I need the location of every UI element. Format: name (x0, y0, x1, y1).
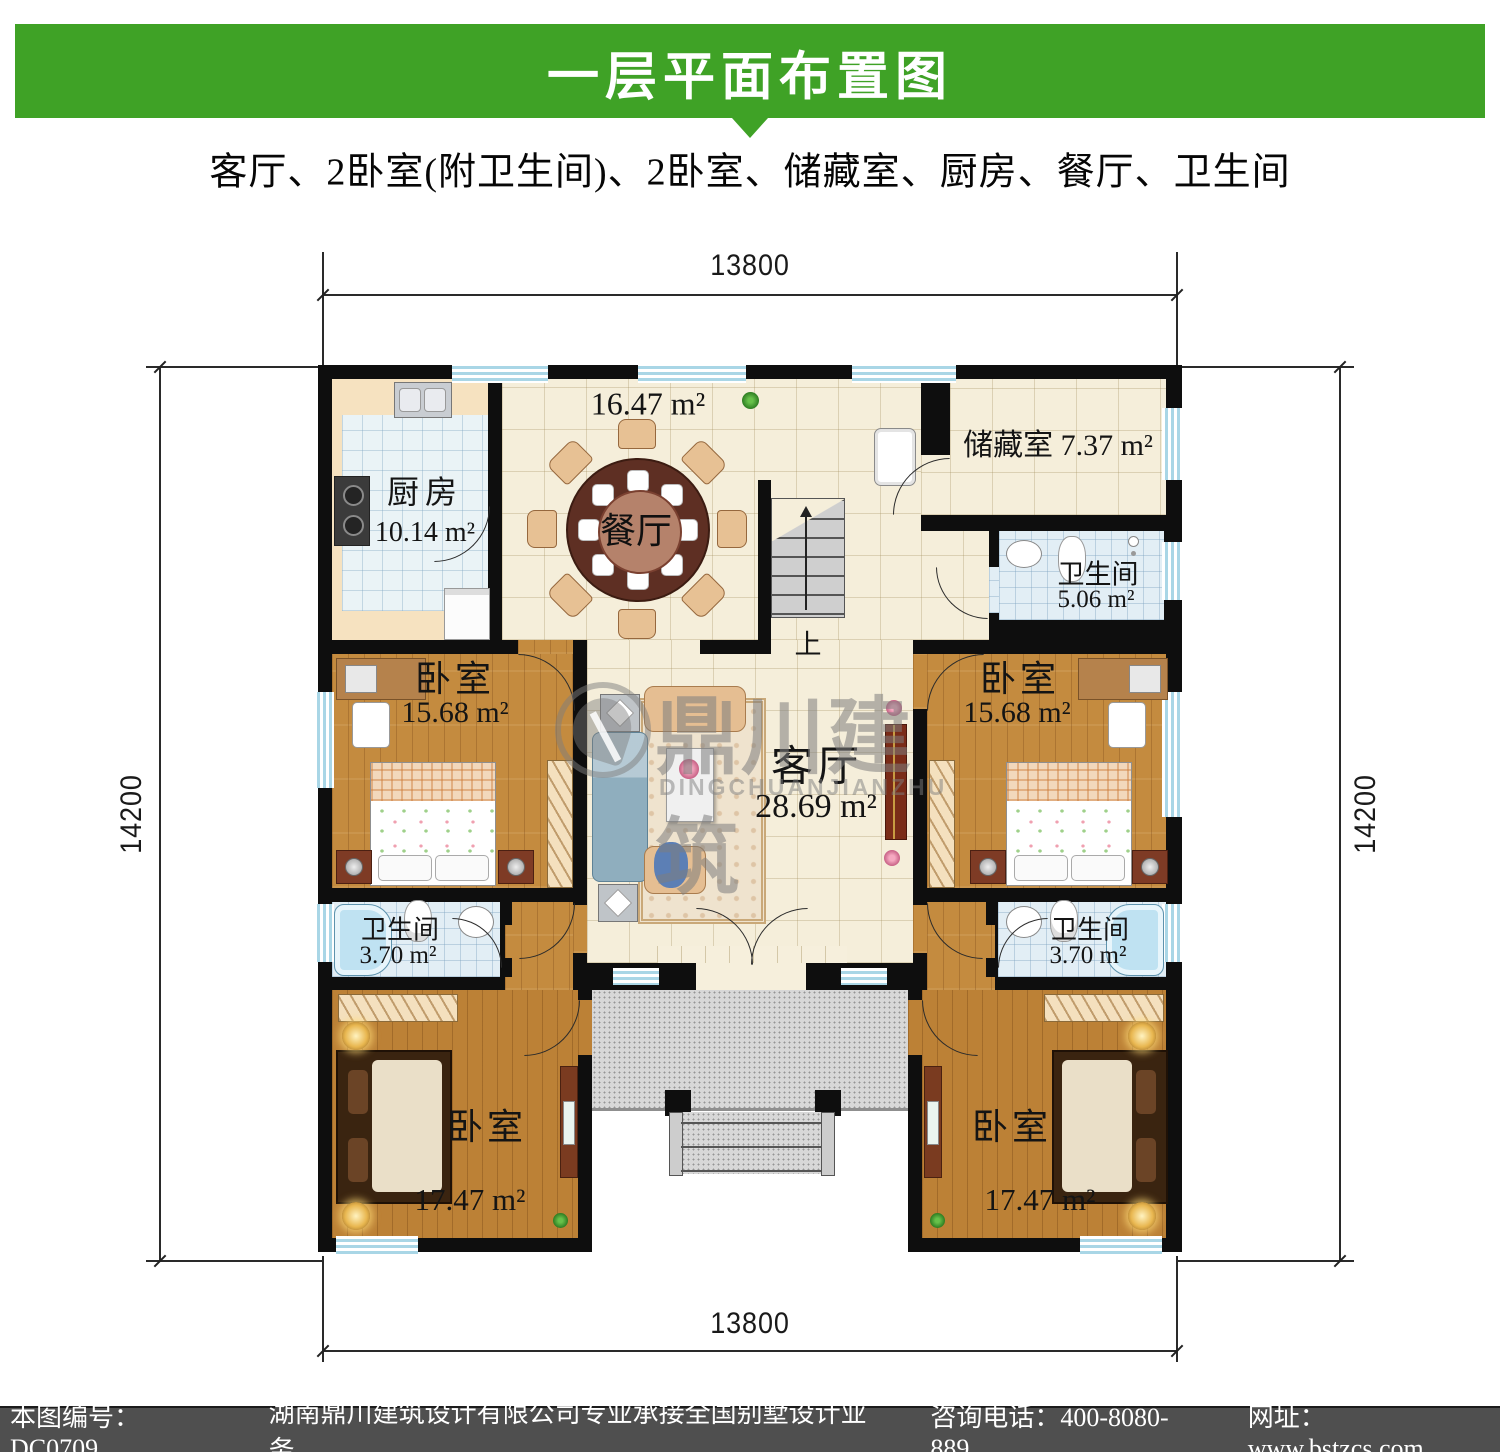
printer (1129, 665, 1161, 693)
room-area-kitchen: 10.14 m² (375, 517, 475, 549)
room-name-bedroom-bottom-left: 卧室 (447, 1098, 527, 1150)
window (314, 904, 334, 962)
window (336, 1236, 418, 1254)
pillow-brown (1136, 1070, 1156, 1114)
room-name-kitchen: 厨房 (387, 467, 463, 513)
door-gap (573, 905, 587, 953)
desk (336, 658, 426, 700)
double-bed (1006, 762, 1132, 886)
stove (334, 476, 370, 546)
stair-arrow-line (805, 514, 807, 610)
room-area-living: 28.69 m² (755, 788, 877, 826)
fridge (444, 588, 490, 640)
entry-opening (696, 963, 806, 990)
burner (343, 485, 364, 506)
tv (927, 1101, 939, 1145)
room-area-dining: 16.47 m² (591, 386, 705, 423)
wall-segment (921, 379, 950, 455)
room-area-bath-top: 5.06 m² (1058, 586, 1135, 614)
sink-bowl (424, 388, 446, 412)
extension-line (146, 366, 322, 368)
window (852, 363, 956, 383)
plant (930, 1213, 945, 1228)
dining-chair (618, 419, 656, 449)
wall-segment (925, 888, 1166, 902)
printer (345, 665, 377, 693)
stair-wall (758, 480, 771, 654)
wall-segment (488, 560, 502, 640)
bedside-lamp (342, 1022, 370, 1050)
dim-line-top (323, 294, 1177, 296)
bed-plaid-blanket (1007, 763, 1131, 801)
wall-segment (921, 515, 1166, 531)
wall-segment (488, 379, 502, 450)
wall-segment (986, 958, 998, 977)
door-gap (989, 567, 999, 613)
window (638, 363, 746, 383)
window (841, 968, 887, 985)
extension-line (322, 1256, 324, 1362)
person-figure (654, 842, 688, 888)
extension-line (1176, 252, 1178, 366)
extension-line (1178, 366, 1354, 368)
room-name-bath-right: 卫生间 (1051, 910, 1129, 947)
dim-label-bottom: 13800 (710, 1307, 790, 1341)
room-name-bedroom-mid-left: 卧室 (415, 650, 495, 702)
side-table (600, 694, 640, 732)
bed-floral-duvet (371, 801, 495, 853)
dim-label-right: 14200 (1349, 774, 1383, 854)
bedside-lamp (342, 1202, 370, 1230)
extension-line (146, 1260, 322, 1262)
wall-segment (573, 640, 587, 888)
wardrobe (338, 994, 458, 1022)
desk-chair (1108, 702, 1146, 748)
footer-website: 网址：www.bstzcs.com (1248, 1397, 1500, 1452)
tv-cabinet (924, 1066, 942, 1178)
pillow (1014, 855, 1068, 881)
room-area-bath-left: 3.70 m² (360, 942, 437, 970)
door-gap (913, 654, 927, 709)
bed-duvet (1062, 1060, 1132, 1192)
door-gap (518, 640, 573, 654)
plant (553, 1213, 568, 1228)
room-name-living: 客厅 (771, 733, 863, 794)
wardrobe (929, 760, 955, 888)
footer-drawing-no: 本图编号：DC0709 (10, 1397, 227, 1452)
dim-line-left (159, 367, 161, 1262)
door-gap (578, 1000, 592, 1055)
nightstand (498, 850, 534, 884)
window (1080, 1236, 1162, 1254)
extension-line (1176, 1256, 1178, 1362)
door-gap (908, 1000, 922, 1055)
room-name-bedroom-bottom-right: 卧室 (972, 1098, 1052, 1150)
window (1162, 692, 1182, 817)
step-line (681, 1122, 821, 1124)
step-line (681, 1146, 821, 1148)
wardrobe (547, 760, 573, 888)
bed-dark (336, 1050, 452, 1204)
double-bed (370, 762, 496, 886)
extension-line (322, 252, 324, 366)
bathroom-sink (1006, 540, 1042, 568)
page-title: 一层平面布置图 (547, 35, 953, 110)
step-rail (821, 1112, 835, 1176)
footer-bar: 本图编号：DC0709 湖南鼎川建筑设计有限公司专业承接全国别墅设计业务 咨询电… (0, 1406, 1500, 1452)
dining-chair (527, 510, 557, 548)
flower-deco (884, 850, 900, 866)
plate (578, 519, 600, 541)
room-area-bath-right: 3.70 m² (1050, 942, 1127, 970)
dim-label-left: 14200 (115, 774, 149, 854)
room-name-bedroom-mid-right: 卧室 (980, 650, 1060, 702)
wall-segment (500, 902, 512, 925)
nightstand (970, 850, 1006, 884)
table-deco (604, 889, 632, 917)
bedside-lamp (1128, 1202, 1156, 1230)
window (1162, 542, 1182, 600)
stair-arrow-head (800, 506, 812, 517)
table-flowers (679, 759, 699, 779)
bed-dark (1052, 1050, 1168, 1204)
wall-segment (332, 888, 573, 902)
window (1162, 408, 1182, 480)
sofa-seat (644, 686, 746, 732)
room-name-bath-left: 卫生间 (361, 910, 439, 947)
tv-cabinet (885, 724, 907, 840)
room-name-dining: 餐厅 (600, 502, 672, 554)
tv-cabinet (560, 1066, 578, 1178)
dining-chair (618, 609, 656, 639)
nightstand (336, 850, 372, 884)
room-area-bedroom-mid-right: 15.68 m² (963, 696, 1070, 730)
room-area-storage: 7.37 m² (1061, 429, 1153, 462)
room-name-storage: 储藏室 (963, 429, 1053, 462)
pillow (378, 855, 432, 881)
pillow-brown (348, 1138, 368, 1182)
bedside-lamp (1128, 1022, 1156, 1050)
pillow-brown (1136, 1138, 1156, 1182)
wall-segment (986, 902, 998, 925)
stairs-up-label: 上 (795, 623, 822, 662)
desk (1078, 658, 1168, 700)
pillow-brown (348, 1070, 368, 1114)
extension-line (1178, 1260, 1354, 1262)
room-area-bedroom-bottom-right: 17.47 m² (985, 1182, 1096, 1218)
shower-head (1128, 536, 1139, 547)
table-deco (606, 699, 634, 727)
footer-company: 湖南鼎川建筑设计有限公司专业承接全国别墅设计业务 (269, 1393, 889, 1452)
dim-line-bottom (323, 1350, 1177, 1352)
plant (742, 392, 759, 409)
porch-edge (592, 1108, 908, 1111)
window (1162, 904, 1182, 962)
bed-duvet (372, 1060, 442, 1192)
room-area-bedroom-mid-left: 15.68 m² (401, 696, 508, 730)
nightstand (1132, 850, 1168, 884)
kitchen-sink (394, 382, 452, 418)
door-gap (913, 905, 927, 953)
banner-pointer (732, 118, 768, 138)
step-line (681, 1170, 821, 1172)
bed-floral-duvet (1007, 801, 1131, 853)
coffee-table (666, 748, 714, 822)
sofa-sectional (592, 732, 648, 882)
porch-platform (592, 990, 908, 1110)
sink-bowl (399, 388, 421, 412)
plate (627, 470, 649, 492)
dining-chair (717, 510, 747, 548)
room-label-storage: 储藏室 7.37 m² (963, 420, 1153, 464)
wall-segment (989, 620, 1182, 640)
dim-label-top: 13800 (710, 249, 790, 283)
tv (563, 1101, 575, 1145)
pillow (435, 855, 489, 881)
burner (343, 515, 364, 536)
floor-plan-page: 一层平面布置图 客厅、2卧室(附卫生间)、2卧室、储藏室、厨房、餐厅、卫生间 1… (0, 0, 1500, 1452)
dim-line-right (1339, 367, 1341, 1262)
pillow (1071, 855, 1125, 881)
window (314, 692, 334, 788)
footer-phone: 咨询电话：400-8080-889 (930, 1397, 1205, 1452)
desk-chair (352, 702, 390, 748)
window (452, 363, 548, 383)
wardrobe (1044, 994, 1164, 1022)
room-area-bedroom-bottom-left: 17.47 m² (415, 1182, 526, 1218)
flower-deco (886, 700, 902, 716)
side-table (598, 884, 638, 922)
bed-plaid-blanket (371, 763, 495, 801)
plan-subtitle: 客厅、2卧室(附卫生间)、2卧室、储藏室、厨房、餐厅、卫生间 (209, 141, 1290, 196)
window (613, 968, 659, 985)
